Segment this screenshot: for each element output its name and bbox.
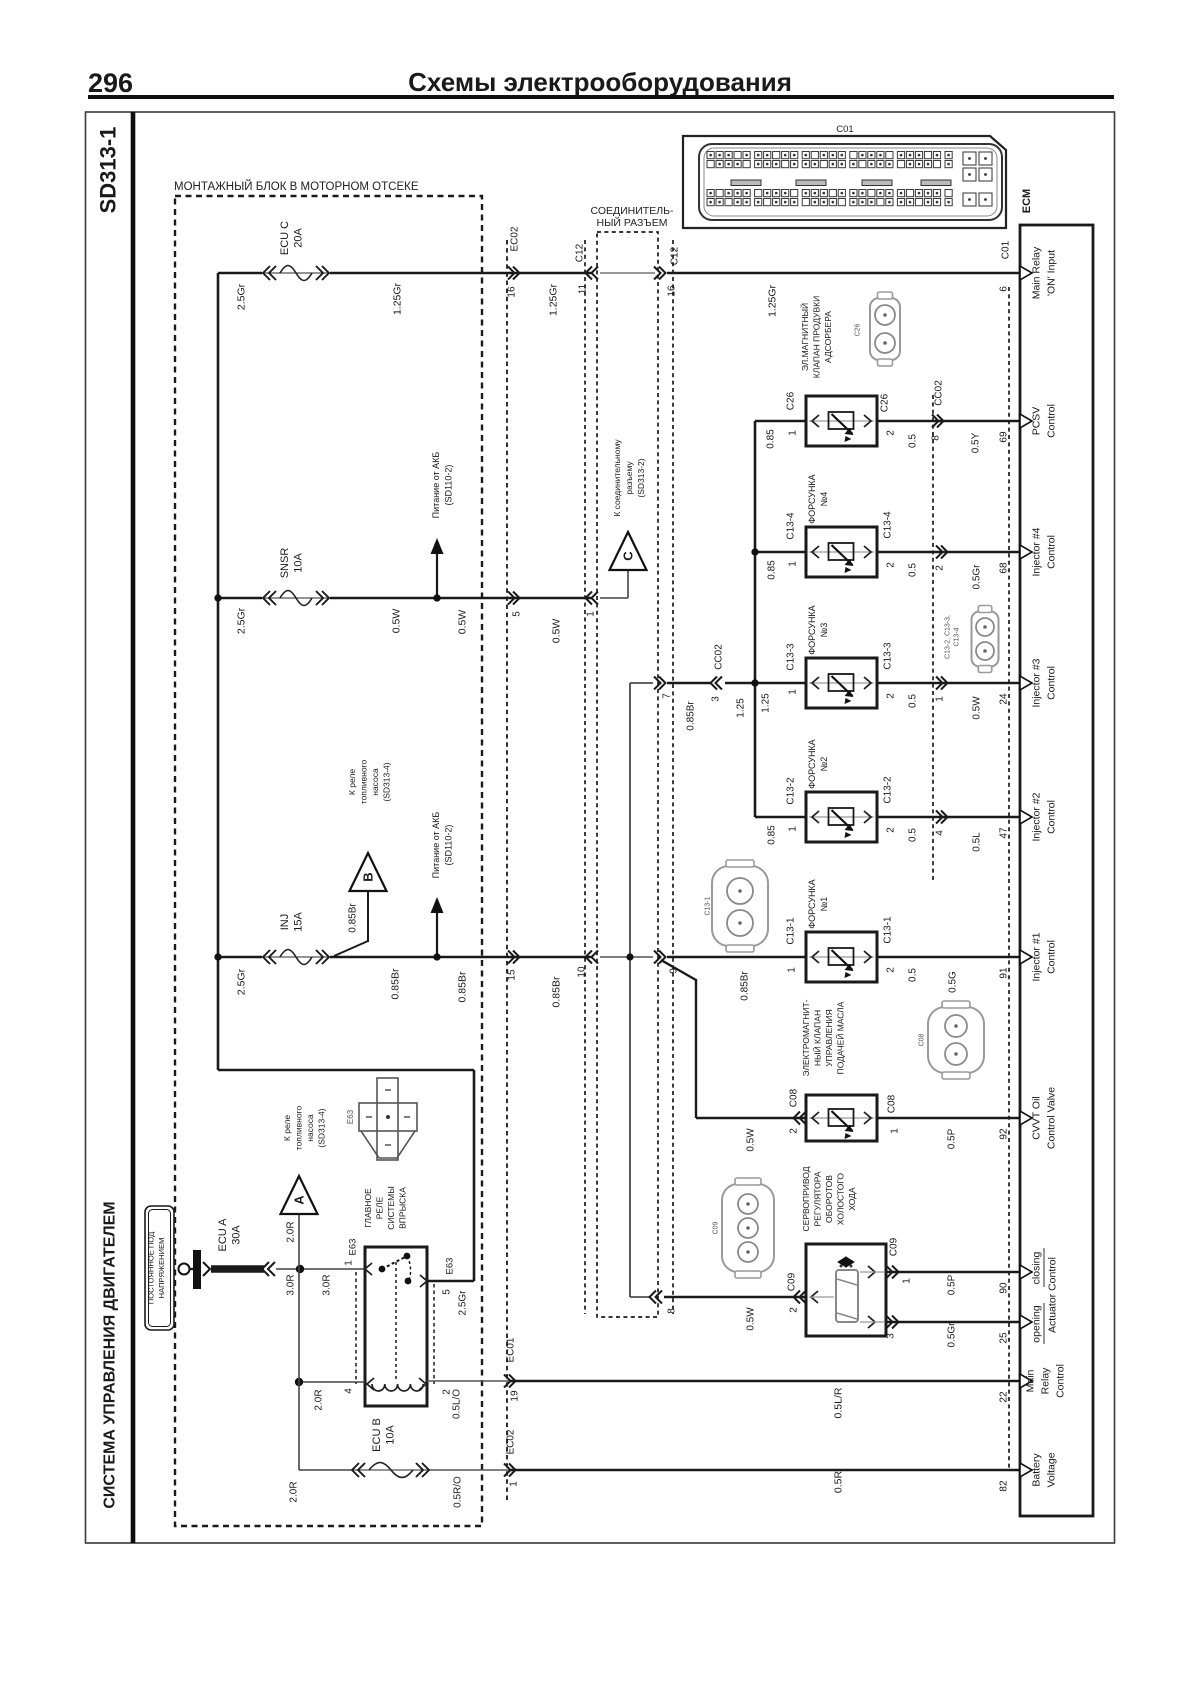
svg-text:C13-4: C13-4 xyxy=(954,627,961,646)
svg-text:2.5Gr: 2.5Gr xyxy=(236,968,248,995)
svg-text:К соединительному: К соединительному xyxy=(612,439,622,517)
svg-text:0.5W: 0.5W xyxy=(391,609,403,634)
svg-text:5: 5 xyxy=(512,611,523,617)
svg-text:10A: 10A xyxy=(292,553,304,573)
svg-text:ОБОРОТОВ: ОБОРОТОВ xyxy=(824,1175,834,1223)
svg-text:10: 10 xyxy=(577,966,588,978)
svg-text:1.25: 1.25 xyxy=(761,693,772,713)
svg-text:C08: C08 xyxy=(887,1094,898,1113)
svg-text:0.5W: 0.5W xyxy=(746,1307,757,1331)
svg-text:ФОРСУНКА: ФОРСУНКА xyxy=(807,474,817,523)
svg-text:2: 2 xyxy=(886,693,897,699)
svg-text:(SD313-4): (SD313-4) xyxy=(382,762,392,801)
svg-text:0.5G: 0.5G xyxy=(948,971,959,993)
svg-text:(SD313-4): (SD313-4) xyxy=(317,1108,327,1147)
svg-text:Main Relay: Main Relay xyxy=(1031,246,1043,299)
svg-text:30A: 30A xyxy=(230,1225,242,1245)
svg-text:0.5R/O: 0.5R/O xyxy=(453,1476,464,1508)
svg-text:CVVT Oil: CVVT Oil xyxy=(1031,1096,1043,1140)
svg-text:1: 1 xyxy=(787,967,798,973)
svg-text:1: 1 xyxy=(788,689,799,695)
svg-text:0.5W: 0.5W xyxy=(457,610,469,635)
svg-text:Control: Control xyxy=(1046,940,1058,974)
svg-text:C13-1: C13-1 xyxy=(705,896,712,915)
svg-text:Control: Control xyxy=(1055,1364,1067,1398)
svg-text:E63: E63 xyxy=(347,1239,358,1256)
svg-text:1: 1 xyxy=(788,826,799,832)
svg-text:C12: C12 xyxy=(670,246,681,265)
svg-text:4: 4 xyxy=(344,1388,355,1394)
svg-text:насоса: насоса xyxy=(370,768,380,796)
svg-text:2: 2 xyxy=(886,562,897,568)
svg-text:(SD110-2): (SD110-2) xyxy=(444,825,454,866)
svg-text:C01: C01 xyxy=(836,124,853,135)
svg-text:16: 16 xyxy=(667,285,678,297)
svg-text:СОЕДИНИТЕЛЬ-: СОЕДИНИТЕЛЬ- xyxy=(590,205,674,217)
svg-text:1: 1 xyxy=(509,1481,520,1487)
svg-text:8: 8 xyxy=(931,435,942,441)
svg-text:90: 90 xyxy=(999,1282,1010,1294)
svg-text:closing: closing xyxy=(1031,1251,1043,1284)
svg-text:2: 2 xyxy=(789,1307,800,1313)
svg-text:0.85Br: 0.85Br xyxy=(390,968,402,999)
svg-text:C08: C08 xyxy=(919,1033,926,1046)
svg-text:Injector #1: Injector #1 xyxy=(1031,932,1043,981)
svg-text:C12: C12 xyxy=(575,243,586,262)
svg-text:1: 1 xyxy=(890,1128,901,1134)
svg-text:К реле: К реле xyxy=(282,1115,292,1141)
svg-text:296: 296 xyxy=(88,68,133,98)
svg-text:16: 16 xyxy=(507,286,518,298)
svg-text:РЕЛЕ: РЕЛЕ xyxy=(375,1196,385,1219)
svg-text:1: 1 xyxy=(788,430,799,436)
svg-text:ПОДАЧЕЙ МАСЛА: ПОДАЧЕЙ МАСЛА xyxy=(835,1001,846,1074)
svg-text:EC02: EC02 xyxy=(506,1429,517,1454)
svg-text:7: 7 xyxy=(662,693,673,699)
svg-text:0.5W: 0.5W xyxy=(972,696,983,720)
svg-text:ECM: ECM xyxy=(1021,189,1033,213)
svg-text:АДСОРБЕРА: АДСОРБЕРА xyxy=(823,311,833,363)
svg-text:0.5Gr: 0.5Gr xyxy=(947,1322,958,1348)
svg-text:C09: C09 xyxy=(787,1272,798,1291)
svg-text:ФОРСУНКА: ФОРСУНКА xyxy=(807,605,817,654)
svg-text:'ON' Input: 'ON' Input xyxy=(1046,250,1058,296)
svg-text:92: 92 xyxy=(999,1128,1010,1140)
svg-text:0.5: 0.5 xyxy=(908,694,919,708)
svg-text:Injector #3: Injector #3 xyxy=(1031,658,1043,707)
svg-text:0.5W: 0.5W xyxy=(551,619,563,644)
svg-text:0.5: 0.5 xyxy=(908,563,919,577)
svg-text:2: 2 xyxy=(886,430,897,436)
svg-text:Injector #2: Injector #2 xyxy=(1031,792,1043,841)
svg-text:91: 91 xyxy=(999,967,1010,979)
svg-text:ХОЛОСТОГО: ХОЛОСТОГО xyxy=(836,1173,846,1225)
svg-text:opening: opening xyxy=(1031,1305,1043,1343)
svg-text:C13-3: C13-3 xyxy=(883,642,894,670)
svg-text:Control Valve: Control Valve xyxy=(1046,1087,1058,1149)
svg-text:разъему: разъему xyxy=(624,461,634,495)
svg-text:0.5: 0.5 xyxy=(908,434,919,448)
svg-text:2: 2 xyxy=(789,1128,800,1134)
svg-text:EC02: EC02 xyxy=(510,226,521,251)
svg-text:C: C xyxy=(621,551,636,561)
svg-text:2.0R: 2.0R xyxy=(289,1481,300,1502)
svg-text:82: 82 xyxy=(999,1480,1010,1492)
svg-text:(SD110-2): (SD110-2) xyxy=(444,465,454,506)
svg-text:1.25Gr: 1.25Gr xyxy=(548,283,560,316)
svg-text:Питание от АКБ: Питание от АКБ xyxy=(431,452,441,519)
svg-text:EC01: EC01 xyxy=(506,1337,517,1362)
svg-text:Control: Control xyxy=(1046,800,1058,834)
svg-text:C13-2, C13-3,: C13-2, C13-3, xyxy=(945,615,952,659)
svg-text:0.5Gr: 0.5Gr xyxy=(972,564,983,590)
svg-text:C13-3: C13-3 xyxy=(786,643,797,671)
svg-text:10A: 10A xyxy=(384,1425,396,1445)
svg-text:Battery: Battery xyxy=(1031,1453,1043,1487)
svg-text:1.25: 1.25 xyxy=(736,698,747,718)
svg-text:Control: Control xyxy=(1046,404,1058,438)
svg-text:15: 15 xyxy=(507,969,518,981)
svg-text:НАПРЯЖЕНИЕМ: НАПРЯЖЕНИЕМ xyxy=(157,1238,166,1299)
svg-text:0.85Br: 0.85Br xyxy=(551,976,563,1007)
svg-text:ECU C: ECU C xyxy=(279,221,291,255)
svg-text:0.85: 0.85 xyxy=(767,560,778,580)
svg-text:Питание от АКБ: Питание от АКБ xyxy=(431,812,441,879)
svg-text:МОНТАЖНЫЙ БЛОК В МОТОРНОМ ОТСЕ: МОНТАЖНЫЙ БЛОК В МОТОРНОМ ОТСЕКЕ xyxy=(174,180,419,193)
svg-text:топливного: топливного xyxy=(359,760,369,805)
svg-text:15A: 15A xyxy=(292,912,304,932)
svg-text:C26: C26 xyxy=(786,391,797,410)
svg-text:C13-1: C13-1 xyxy=(883,916,894,944)
svg-text:CC02: CC02 xyxy=(934,380,945,406)
svg-text:0.5: 0.5 xyxy=(908,828,919,842)
svg-text:C26: C26 xyxy=(855,323,862,336)
svg-text:0.5L: 0.5L xyxy=(972,832,983,852)
svg-text:Injector #4: Injector #4 xyxy=(1031,527,1043,576)
svg-text:№3: №3 xyxy=(819,623,829,638)
svg-text:SD313-1: SD313-1 xyxy=(96,127,121,214)
svg-text:КЛАПАН ПРОДУВКИ: КЛАПАН ПРОДУВКИ xyxy=(812,296,822,378)
svg-text:1.25Gr: 1.25Gr xyxy=(392,282,404,315)
svg-text:C08: C08 xyxy=(789,1088,800,1107)
svg-text:C13-2: C13-2 xyxy=(883,776,894,804)
svg-text:ВПРЫСКА: ВПРЫСКА xyxy=(398,1187,408,1229)
svg-text:1: 1 xyxy=(788,561,799,567)
svg-text:25: 25 xyxy=(999,1332,1010,1344)
svg-text:3: 3 xyxy=(711,696,722,702)
svg-text:Control: Control xyxy=(1046,535,1058,569)
svg-text:ЭЛЕКТРОМАГНИТ-: ЭЛЕКТРОМАГНИТ- xyxy=(801,999,811,1076)
svg-text:C13-4: C13-4 xyxy=(786,512,797,540)
svg-text:2.5Gr: 2.5Gr xyxy=(236,283,248,310)
svg-text:ПОСТОЯННОЕ ПОД: ПОСТОЯННОЕ ПОД xyxy=(147,1232,156,1305)
svg-text:19: 19 xyxy=(510,1390,521,1402)
svg-text:Actuator Control: Actuator Control xyxy=(1047,1257,1059,1333)
svg-text:C13-1: C13-1 xyxy=(786,917,797,945)
svg-text:СИСТЕМА УПРАВЛЕНИЯ ДВИГАТЕЛЕМ: СИСТЕМА УПРАВЛЕНИЯ ДВИГАТЕЛЕМ xyxy=(102,1201,119,1508)
svg-text:2: 2 xyxy=(886,827,897,833)
svg-text:насоса: насоса xyxy=(305,1114,315,1142)
svg-text:6: 6 xyxy=(999,286,1010,292)
svg-text:69: 69 xyxy=(999,431,1010,443)
svg-text:2.5Gr: 2.5Gr xyxy=(458,1290,469,1316)
svg-text:0.85: 0.85 xyxy=(766,429,777,449)
svg-text:К реле: К реле xyxy=(347,769,357,795)
svg-text:2.0R: 2.0R xyxy=(314,1389,325,1410)
svg-text:ХОДА: ХОДА xyxy=(847,1187,857,1211)
svg-text:4: 4 xyxy=(935,830,946,836)
svg-text:C09: C09 xyxy=(889,1237,900,1256)
svg-text:B: B xyxy=(361,872,376,881)
svg-text:INJ: INJ xyxy=(279,914,291,931)
svg-text:A: A xyxy=(292,1195,307,1205)
svg-text:ГЛАВНОЕ: ГЛАВНОЕ xyxy=(363,1188,373,1228)
svg-text:0.5W: 0.5W xyxy=(746,1128,757,1152)
svg-text:3.0R: 3.0R xyxy=(286,1274,297,1295)
svg-text:0.5P: 0.5P xyxy=(947,1128,958,1149)
svg-text:1: 1 xyxy=(586,611,597,617)
svg-text:Voltage: Voltage xyxy=(1046,1452,1058,1487)
svg-text:C09: C09 xyxy=(713,1221,720,1234)
svg-text:E63: E63 xyxy=(346,1109,355,1124)
svg-text:1.25Gr: 1.25Gr xyxy=(767,284,779,317)
svg-text:0.5: 0.5 xyxy=(908,968,919,982)
svg-text:0.5R: 0.5R xyxy=(833,1470,845,1493)
svg-text:1: 1 xyxy=(902,1278,913,1284)
svg-text:ФОРСУНКА: ФОРСУНКА xyxy=(807,739,817,788)
svg-text:11: 11 xyxy=(578,283,589,294)
svg-text:PCSV: PCSV xyxy=(1031,407,1043,436)
svg-text:3.0R: 3.0R xyxy=(322,1274,333,1295)
svg-text:68: 68 xyxy=(999,562,1010,574)
svg-text:1: 1 xyxy=(344,1260,355,1266)
svg-text:топливного: топливного xyxy=(294,1106,304,1151)
svg-text:УПРАВЛЕНИЯ: УПРАВЛЕНИЯ xyxy=(824,1009,834,1067)
svg-text:0.85: 0.85 xyxy=(767,825,778,845)
svg-text:5: 5 xyxy=(442,1289,453,1295)
svg-text:№2: №2 xyxy=(819,757,829,772)
svg-text:2: 2 xyxy=(886,967,897,973)
svg-text:ECU B: ECU B xyxy=(371,1418,383,1452)
svg-text:1: 1 xyxy=(935,696,946,702)
svg-text:ЭЛ.МАГНИТНЫЙ: ЭЛ.МАГНИТНЫЙ xyxy=(799,303,810,371)
svg-text:CC02: CC02 xyxy=(714,644,725,670)
svg-text:22: 22 xyxy=(999,1391,1010,1403)
svg-text:НЫЙ РАЗЪЕМ: НЫЙ РАЗЪЕМ xyxy=(597,216,668,229)
svg-text:2.5Gr: 2.5Gr xyxy=(236,607,248,634)
svg-text:Main: Main xyxy=(1025,1369,1037,1392)
svg-text:47: 47 xyxy=(999,827,1010,839)
svg-text:СИСТЕМЫ: СИСТЕМЫ xyxy=(386,1186,396,1230)
svg-text:E63: E63 xyxy=(444,1258,455,1275)
svg-text:РЕГУЛЯТОРА: РЕГУЛЯТОРА xyxy=(813,1171,823,1226)
svg-text:0.85Br: 0.85Br xyxy=(686,701,697,731)
svg-text:C01: C01 xyxy=(1001,240,1012,259)
svg-text:C13-4: C13-4 xyxy=(883,511,894,539)
svg-text:№1: №1 xyxy=(819,897,829,912)
svg-text:SNSR: SNSR xyxy=(279,548,291,579)
svg-text:24: 24 xyxy=(999,693,1010,705)
svg-text:Control: Control xyxy=(1046,666,1058,700)
svg-text:0.5L/O: 0.5L/O xyxy=(452,1389,463,1419)
svg-text:(SD313-2): (SD313-2) xyxy=(636,458,646,497)
svg-text:0.5Y: 0.5Y xyxy=(971,432,982,453)
svg-text:C26: C26 xyxy=(880,393,891,412)
svg-text:ECU A: ECU A xyxy=(217,1218,229,1252)
svg-text:ФОРСУНКА: ФОРСУНКА xyxy=(807,879,817,928)
svg-text:НЫЙ КЛАПАН: НЫЙ КЛАПАН xyxy=(812,1010,823,1066)
svg-text:3: 3 xyxy=(886,1333,897,1339)
svg-text:C13-2: C13-2 xyxy=(786,777,797,805)
svg-text:СЕРВОПРИВОД: СЕРВОПРИВОД xyxy=(801,1166,811,1231)
svg-text:0.85Br: 0.85Br xyxy=(457,971,469,1002)
svg-text:№4: №4 xyxy=(819,492,829,507)
svg-text:0.85Br: 0.85Br xyxy=(740,971,751,1001)
svg-text:2.0R: 2.0R xyxy=(286,1221,297,1242)
svg-text:0.5P: 0.5P xyxy=(947,1274,958,1295)
svg-text:0.5L/R: 0.5L/R xyxy=(833,1387,845,1418)
svg-text:0.85Br: 0.85Br xyxy=(348,903,359,933)
svg-text:Relay: Relay xyxy=(1040,1367,1052,1395)
svg-text:2: 2 xyxy=(935,565,946,571)
svg-text:8: 8 xyxy=(667,1308,678,1314)
svg-text:Схемы электрооборудования: Схемы электрооборудования xyxy=(408,67,792,97)
svg-text:20A: 20A xyxy=(292,228,304,248)
